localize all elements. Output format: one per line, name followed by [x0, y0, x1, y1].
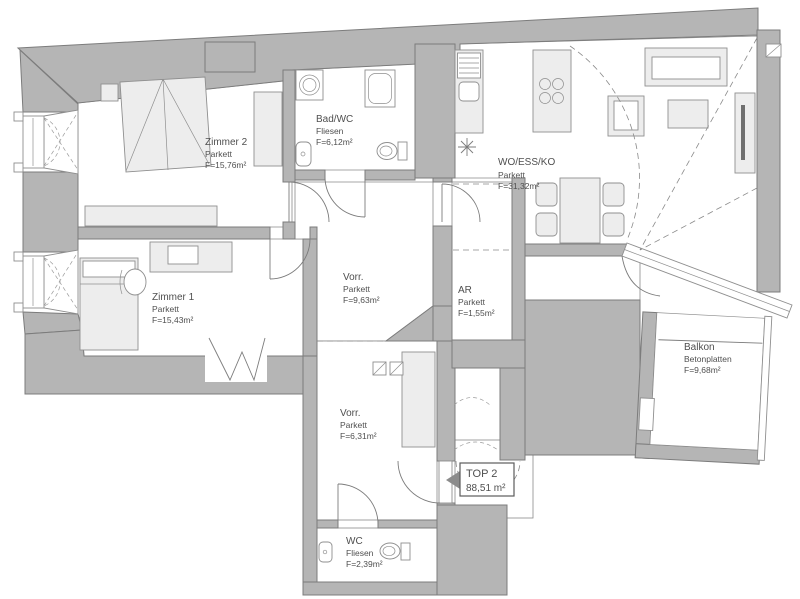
- room-area: F=1,55m²: [458, 308, 495, 318]
- room-name: Vorr.: [343, 272, 364, 283]
- room-material: Betonplatten: [684, 354, 732, 364]
- room-material: Parkett: [458, 297, 486, 307]
- room-material: Parkett: [340, 420, 368, 430]
- room-material: Fliesen: [346, 548, 374, 558]
- wall-badwc-south-a: [295, 170, 325, 180]
- room-material: Parkett: [343, 284, 371, 294]
- shaft-symbol-1: [373, 362, 386, 375]
- sideboard-symbol: [85, 206, 217, 226]
- room-material: Fliesen: [316, 126, 344, 136]
- wall-badwc-south-b: [365, 170, 415, 180]
- room-material: Parkett: [152, 304, 180, 314]
- room-area: F=9,63m²: [343, 295, 380, 305]
- room-area: F=6,12m²: [316, 137, 353, 147]
- hall-cabinet-symbol: [402, 352, 435, 447]
- wall-vestibule-east: [500, 368, 525, 460]
- room-name: Zimmer 1: [152, 292, 195, 303]
- room-name: WO/ESS/KO: [498, 157, 555, 168]
- balcony-slab: [650, 313, 765, 450]
- passage-to-balcony-floor: [525, 256, 640, 300]
- balcony: [635, 310, 772, 465]
- room-name: Balkon: [684, 342, 715, 353]
- wall-corridor-west: [303, 356, 317, 595]
- wall-vorraum1-east-a: [433, 226, 452, 306]
- wall-below-ar: [452, 340, 525, 368]
- wall-vorraum1-east-stub: [433, 178, 452, 182]
- floor-plan-page: Zimmer 2 Parkett F=15,76m² Bad/WC Fliese…: [0, 0, 800, 599]
- tv-board-symbol: [735, 93, 755, 173]
- wardrobe2-symbol: [254, 92, 282, 166]
- room-name: Zimmer 2: [205, 137, 248, 148]
- desk-symbol: [150, 242, 232, 272]
- unit-name: TOP 2: [466, 468, 497, 480]
- wall-zimmer2-east-stub: [283, 222, 295, 239]
- room-area: F=15,76m²: [205, 160, 247, 170]
- wc-toilet-icon: [380, 543, 410, 560]
- room-area: F=9,68m²: [684, 365, 721, 375]
- room-area: F=6,31m²: [340, 431, 377, 441]
- wall-vorraum1-east-b: [433, 306, 452, 341]
- room-name: Vorr.: [340, 408, 361, 419]
- unit-area: 88,51 m²: [466, 483, 506, 494]
- balcony-planter: [639, 398, 655, 431]
- wc-sink-icon: [319, 542, 332, 562]
- wall-wc-north-b: [378, 520, 437, 528]
- washing-machine-icon: [296, 70, 323, 100]
- vent-symbol-top-right: [766, 44, 781, 57]
- sofa-symbol: [645, 48, 727, 86]
- wall-kitchen-west: [415, 44, 455, 178]
- wall-ar-east: [512, 178, 525, 340]
- armchair-symbol: [608, 96, 644, 136]
- exterior-wall-bottom: [303, 582, 455, 595]
- stairwell-mass-center: [525, 300, 640, 455]
- room-material: Parkett: [498, 170, 526, 180]
- room-area: F=31,32m²: [498, 181, 540, 191]
- kitchen-island: [533, 50, 571, 132]
- floor-plan-drawing: Zimmer 2 Parkett F=15,76m² Bad/WC Fliese…: [0, 0, 800, 599]
- wardrobe-rail-symbol: [205, 334, 267, 382]
- room-area: F=2,39m²: [346, 559, 383, 569]
- room-area: F=15,43m²: [152, 315, 194, 325]
- sink-icon: [296, 142, 311, 166]
- exterior-wall-right: [757, 30, 780, 292]
- exterior-wall-left-mid: [23, 172, 78, 252]
- kitchen-unit: [455, 50, 483, 133]
- room-material: Parkett: [205, 149, 233, 159]
- wall-zimmer-divider-a: [78, 227, 270, 239]
- nightstand-symbol: [101, 84, 118, 101]
- stairwell-mass-south: [437, 505, 507, 595]
- room-name: Bad/WC: [316, 114, 353, 125]
- room-name: WC: [346, 536, 363, 547]
- wall-zimmer2-east: [283, 70, 295, 182]
- window-zimmer2: [14, 110, 78, 174]
- wall-living-south: [525, 244, 627, 256]
- room-wc-floor: [317, 528, 437, 582]
- wall-zimmer1-east: [303, 239, 317, 356]
- toilet-icon: [377, 142, 407, 160]
- room-name: AR: [458, 285, 472, 296]
- window-zimmer1: [14, 250, 78, 314]
- wall-wc-north-a: [317, 520, 338, 528]
- chimney-block: [205, 42, 255, 72]
- bathtub-icon: [365, 70, 395, 107]
- coffee-table-symbol: [668, 100, 708, 128]
- shaft-symbol-2: [390, 362, 403, 375]
- wall-zimmer-divider-b: [310, 227, 317, 239]
